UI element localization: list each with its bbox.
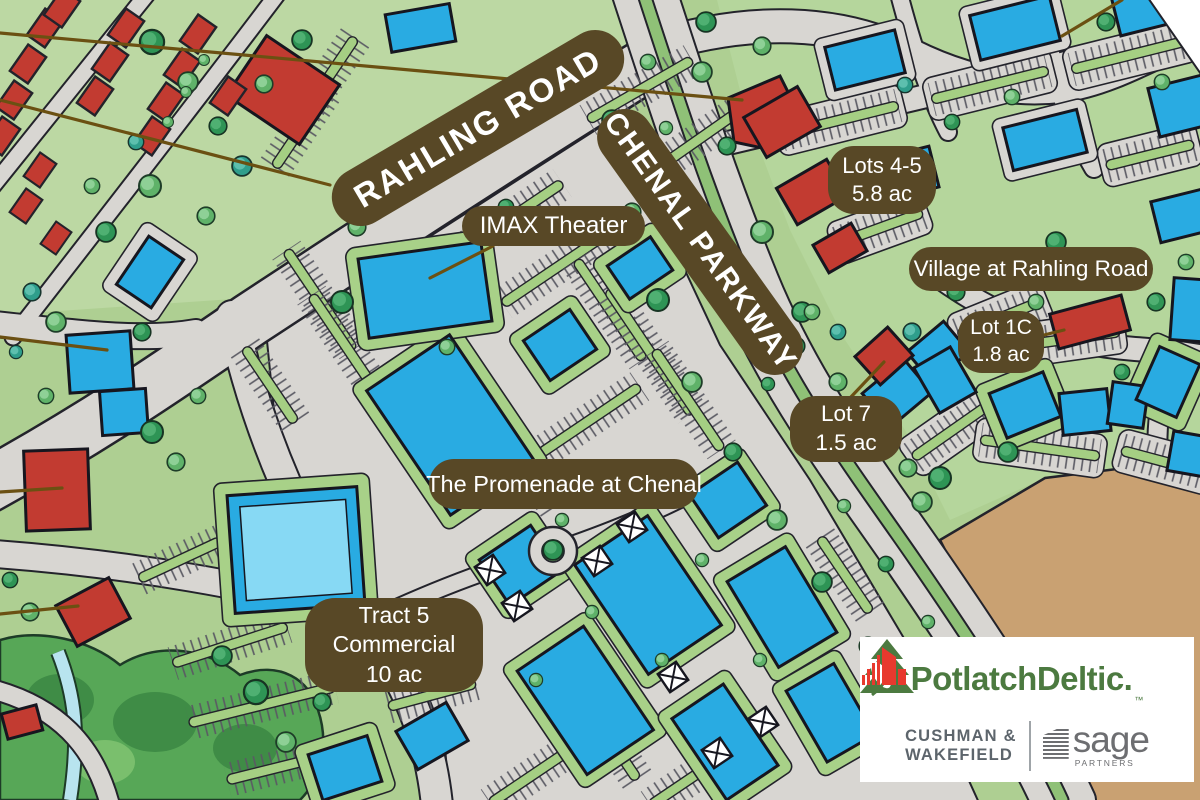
sage-wordmark: sage (1073, 723, 1149, 756)
label-imax-theater: IMAX Theater (462, 206, 645, 246)
label-text: Village at Rahling Road (914, 255, 1149, 284)
logo-divider (1029, 721, 1031, 771)
label-acreage: 10 ac (366, 660, 422, 689)
label-tract-5: Tract 5 Commercial 10 ac (305, 598, 483, 692)
sage-partners-logo: sage PARTNERS (1043, 723, 1149, 768)
striped-building-icon (1043, 729, 1069, 759)
label-text: Tract 5 (359, 601, 430, 630)
label-village-at-rahling-road: Village at Rahling Road (909, 247, 1153, 291)
label-text: Commercial (333, 630, 456, 659)
label-text: Lot 1C (970, 315, 1032, 342)
label-acreage: 1.5 ac (815, 429, 876, 458)
label-acreage: 5.8 ac (852, 180, 912, 208)
brokerage-logo-panel: PotlatchDeltic. ™ CUSHMAN & WAKEFIELD sa… (860, 637, 1194, 782)
sage-partners-subtext: PARTNERS (1075, 758, 1135, 768)
label-text: The Promenade at Chenal (426, 469, 702, 499)
cushman-line2: WAKEFIELD (905, 746, 1017, 765)
cushman-wakefield-building-icon (860, 637, 906, 685)
label-text: Lots 4-5 (842, 152, 922, 180)
label-lots-4-5: Lots 4-5 5.8 ac (828, 146, 936, 214)
label-acreage: 1.8 ac (972, 342, 1029, 369)
label-text: IMAX Theater (480, 211, 628, 242)
broker-logos-row: CUSHMAN & WAKEFIELD sage PARTNERS (860, 715, 1194, 777)
potlatchdeltic-logo: PotlatchDeltic. ™ (860, 643, 1194, 715)
map-canvas: RAHLING ROAD CHENAL PARKWAY IMAX Theater… (0, 0, 1200, 800)
cushman-wakefield-wordmark: CUSHMAN & WAKEFIELD (905, 727, 1017, 765)
trademark-symbol: ™ (1134, 695, 1143, 705)
label-lot-7: Lot 7 1.5 ac (790, 396, 902, 462)
large-blue-pad-building (227, 487, 365, 614)
cushman-line1: CUSHMAN & (905, 727, 1017, 746)
label-text: Lot 7 (821, 400, 871, 429)
label-lot-1c: Lot 1C 1.8 ac (958, 311, 1044, 373)
potlatchdeltic-wordmark: PotlatchDeltic. (911, 660, 1133, 698)
label-promenade-at-chenal: The Promenade at Chenal (429, 459, 699, 509)
